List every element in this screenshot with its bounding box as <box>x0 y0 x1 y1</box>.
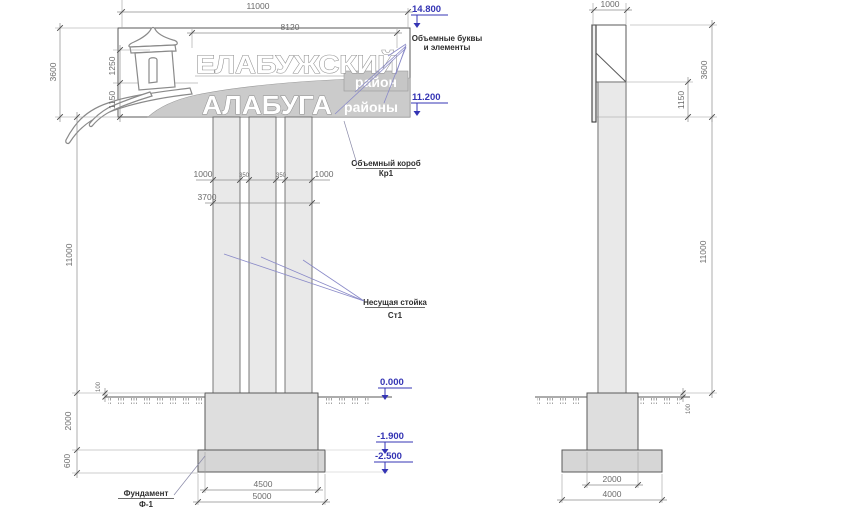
dim-front-col-right: 1000 <box>315 169 334 179</box>
dim-front-cols-total: 3700 <box>198 192 217 202</box>
dim-front-letters-width: 8120 <box>281 22 300 32</box>
dim-side-depth: 1000 <box>601 0 620 9</box>
dim-front-slab-thickness: 600 <box>62 454 72 468</box>
elevation-pedestal-bottom: -1.900 <box>377 431 404 442</box>
tower-logo-icon <box>66 28 192 144</box>
dim-front-pedestal-width: 4500 <box>254 479 273 489</box>
elevation-drawing: ЕЛАБУЖСКИЙ район АЛАБУГА районы <box>0 0 858 510</box>
note-box-line2: Кр1 <box>379 169 394 178</box>
front-post-right <box>285 117 312 393</box>
side-sign-panel <box>592 25 596 122</box>
side-post <box>598 82 626 393</box>
dim-front-tier-upper: 1250 <box>107 56 117 75</box>
side-slab <box>562 450 662 472</box>
elevation-arrow <box>414 23 421 28</box>
elevation-arrow <box>414 111 421 116</box>
side-brace <box>596 53 626 82</box>
dim-side-above-ground: 100 <box>686 403 692 414</box>
note-letters-line1: Объемные буквы <box>412 34 483 43</box>
elevation-sign-top: 14.800 <box>412 4 441 15</box>
note-foundation-line2: Ф-1 <box>139 500 153 509</box>
elevation-slab-bottom: -2.500 <box>375 451 402 462</box>
front-pedestal <box>205 393 318 450</box>
note-letters-line2: и элементы <box>424 43 471 52</box>
dim-side-pedestal-width: 2000 <box>603 474 622 484</box>
dim-side-post-height: 11000 <box>698 240 708 263</box>
dim-front-width-total: 11000 <box>246 1 269 11</box>
dim-front-slab-width: 5000 <box>253 491 272 501</box>
elevation-arrow <box>382 469 389 474</box>
dim-side-sign-height: 3600 <box>699 60 709 79</box>
drawing-canvas: ЕЛАБУЖСКИЙ район АЛАБУГА районы <box>0 0 858 510</box>
front-slab <box>198 450 325 472</box>
dim-side-tier-lower: 1150 <box>676 91 686 110</box>
sign-subtitle-tag-text: районы <box>344 99 398 115</box>
dim-front-col-left: 1000 <box>194 169 213 179</box>
dim-front-embed-depth: 2000 <box>63 411 73 430</box>
front-post-middle <box>249 117 276 393</box>
dim-front-gap-right: 350 <box>276 173 287 179</box>
dim-front-gap-left: 350 <box>239 173 250 179</box>
dim-side-slab-width: 4000 <box>603 489 622 499</box>
front-elevation-view: ЕЛАБУЖСКИЙ район АЛАБУГА районы <box>48 0 413 505</box>
dim-front-post-height: 11000 <box>64 243 74 266</box>
elevation-sign-bottom: 11.200 <box>412 92 441 103</box>
note-post-line1: Несущая стойка <box>363 298 427 307</box>
sign-subtitle-text: АЛАБУГА <box>202 90 332 120</box>
note-foundation-line1: Фундамент <box>124 489 169 498</box>
side-elevation-view: 1000 3600 1150 11000 100 2000 4000 <box>535 0 717 503</box>
dim-front-sign-height: 3600 <box>48 62 58 81</box>
note-box-line1: Объемный короб <box>351 159 421 168</box>
elevation-ground: 0.000 <box>380 377 404 388</box>
note-post-line2: Ст1 <box>388 311 403 320</box>
side-pedestal <box>587 393 638 450</box>
dim-front-tier-lower: 1150 <box>107 91 117 110</box>
dim-front-above-ground: 100 <box>96 381 102 392</box>
